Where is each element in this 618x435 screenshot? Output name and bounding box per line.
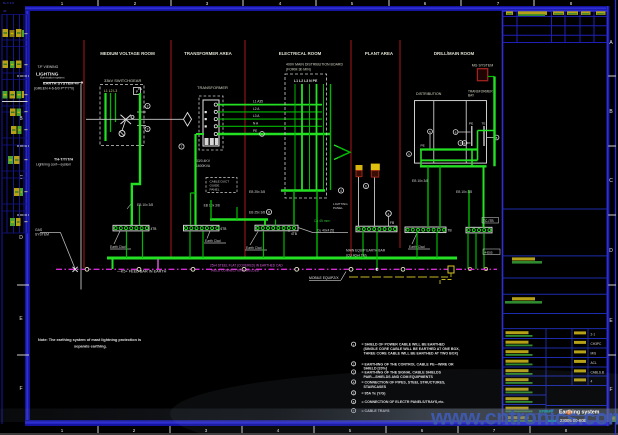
svg-text:1600KVA: 1600KVA [196, 164, 211, 168]
svg-text:—K5+ FEED BAR IN EARTH: —K5+ FEED BAR IN EARTH [117, 270, 167, 274]
svg-text:MG SYSTEM: MG SYSTEM [472, 63, 494, 67]
svg-text:####: #### [548, 419, 557, 423]
svg-text:ELECTRICAL ROOM: ELECTRICAL ROOM [279, 51, 322, 56]
svg-text:D: D [609, 248, 613, 254]
svg-text:BAY: BAY [468, 94, 475, 98]
svg-text:######: ###### [539, 409, 554, 414]
svg-text:4#: 4# [3, 9, 7, 13]
svg-text:Note: The earthing system of m: Note: The earthing system of mast lightn… [38, 338, 141, 342]
svg-text:EB 10x 3/8: EB 10x 3/8 [456, 190, 472, 194]
svg-text:TE: TE [482, 122, 486, 126]
svg-text:FB: FB [390, 221, 394, 225]
svg-text:THREE CORE CABLE WILL BE EARTH: THREE CORE CABLE WILL BE EARTHED AT TWO … [364, 351, 459, 355]
svg-text:TRANSFORMER AREA: TRANSFORMER AREA [184, 51, 232, 56]
svg-text:EB 25x 3/8: EB 25x 3/8 [249, 211, 265, 215]
svg-text:4: 4 [340, 189, 342, 193]
svg-text:DISTRIBUTION: DISTRIBUTION [416, 92, 442, 96]
svg-text:TRANSFORMER: TRANSFORMER [197, 85, 228, 90]
svg-text:N A: N A [253, 121, 259, 125]
svg-text:EB 25x 3/8: EB 25x 3/8 [249, 190, 265, 194]
svg-text:8: 8 [268, 211, 270, 215]
svg-text:L1 A35: L1 A35 [253, 100, 263, 104]
svg-text:(GREEN 4-6-6/0 P*7*7*0): (GREEN 4-6-6/0 P*7*7*0) [34, 87, 74, 91]
svg-text:25x4 STEEL FLAT (COVERED) IN E: 25x4 STEEL FLAT (COVERED) IN EARTHED CAD [210, 264, 283, 268]
svg-text:2-1: 2-1 [591, 332, 596, 336]
svg-text:ACL: ACL [591, 361, 597, 365]
svg-text:D: D [19, 235, 23, 241]
svg-text:C: C [609, 178, 613, 184]
svg-text:4TB: 4TB [151, 227, 157, 231]
svg-text:separate earthing.: separate earthing. [74, 345, 107, 349]
svg-text:EB 10x 3/8: EB 10x 3/8 [137, 203, 153, 207]
svg-text:L3 A: L3 A [253, 114, 260, 118]
svg-text:PE: PE [421, 144, 425, 148]
svg-text:PANEL: PANEL [333, 206, 343, 210]
svg-text:Earth Clad: Earth Clad [246, 246, 262, 250]
svg-text:MEDIUM VOLTAGE ROOM: MEDIUM VOLTAGE ROOM [100, 51, 155, 56]
svg-text:F: F [19, 386, 22, 392]
svg-text:T/F VIEWING: T/F VIEWING [38, 65, 59, 69]
svg-text:4TB: 4TB [291, 232, 297, 236]
svg-text:6TB: 6TB [221, 227, 227, 231]
svg-text:TC-ITB: TC-ITB [483, 219, 494, 223]
svg-text:33/0.4KV: 33/0.4KV [196, 159, 211, 163]
svg-text:2: 2 [147, 128, 149, 132]
svg-text:B+X 3-8: B+X 3-8 [3, 1, 14, 5]
svg-text:(FORM 3b MIN): (FORM 3b MIN) [286, 68, 311, 72]
svg-text:Earth Clad: Earth Clad [110, 245, 126, 249]
svg-text:L1 L2 L3: L1 L2 L3 [104, 89, 117, 93]
svg-text:WELD CONNECTIONS WELDED: WELD CONNECTIONS WELDED [211, 269, 260, 273]
svg-text:TB: TB [448, 229, 452, 233]
svg-text:L2 A: L2 A [253, 107, 260, 111]
svg-text:Earth Clad: Earth Clad [205, 239, 221, 243]
svg-text:6: 6 [365, 185, 367, 189]
svg-text:illumination system: illumination system [40, 75, 65, 79]
svg-text:Earthing system: Earthing system [559, 410, 600, 416]
svg-text:PLANT AREA: PLANT AREA [365, 51, 394, 56]
svg-text:MOBILE EQUIPZ/X: MOBILE EQUIPZ/X [309, 276, 339, 280]
svg-text:DRILL/MAIN ROOM: DRILL/MAIN ROOM [434, 51, 475, 56]
svg-text:23005 00-60E: 23005 00-60E [560, 418, 587, 423]
svg-text:Cu 45 mm²: Cu 45 mm² [314, 219, 331, 223]
svg-text:CH3PC: CH3PC [591, 342, 603, 346]
svg-text:TH-T/T/T/H: TH-T/T/T/H [54, 158, 73, 162]
svg-text:Lightning conf—system: Lightning conf—system [36, 162, 71, 166]
svg-text:Cu 40x4 [5]: Cu 40x4 [5] [317, 229, 334, 233]
svg-text:(CU 40x4 TM): (CU 40x4 TM) [346, 254, 367, 258]
svg-text:2: 2 [147, 105, 149, 109]
svg-text:PE: PE [469, 122, 473, 126]
svg-text:EB 10x 3/8: EB 10x 3/8 [412, 179, 428, 183]
svg-text:4-E05: 4-E05 [485, 250, 493, 254]
svg-text:PE: PE [253, 129, 257, 133]
svg-text:7: 7 [181, 145, 183, 149]
svg-text:PANEL: PANEL [210, 188, 220, 192]
svg-text:M/S: M/S [591, 351, 597, 355]
svg-text:MAIN EQUIP EARTH BAR: MAIN EQUIP EARTH BAR [346, 249, 386, 253]
svg-text:L1 L2 L3 N PE: L1 L2 L3 N PE [294, 79, 318, 83]
svg-text:400V MAIN DISTRIBUTION BOARD: 400V MAIN DISTRIBUTION BOARD [286, 63, 343, 67]
svg-text:33kV SWITCHGEAR: 33kV SWITCHGEAR [104, 78, 141, 83]
svg-text:EB 10x 3/8: EB 10x 3/8 [204, 204, 220, 208]
